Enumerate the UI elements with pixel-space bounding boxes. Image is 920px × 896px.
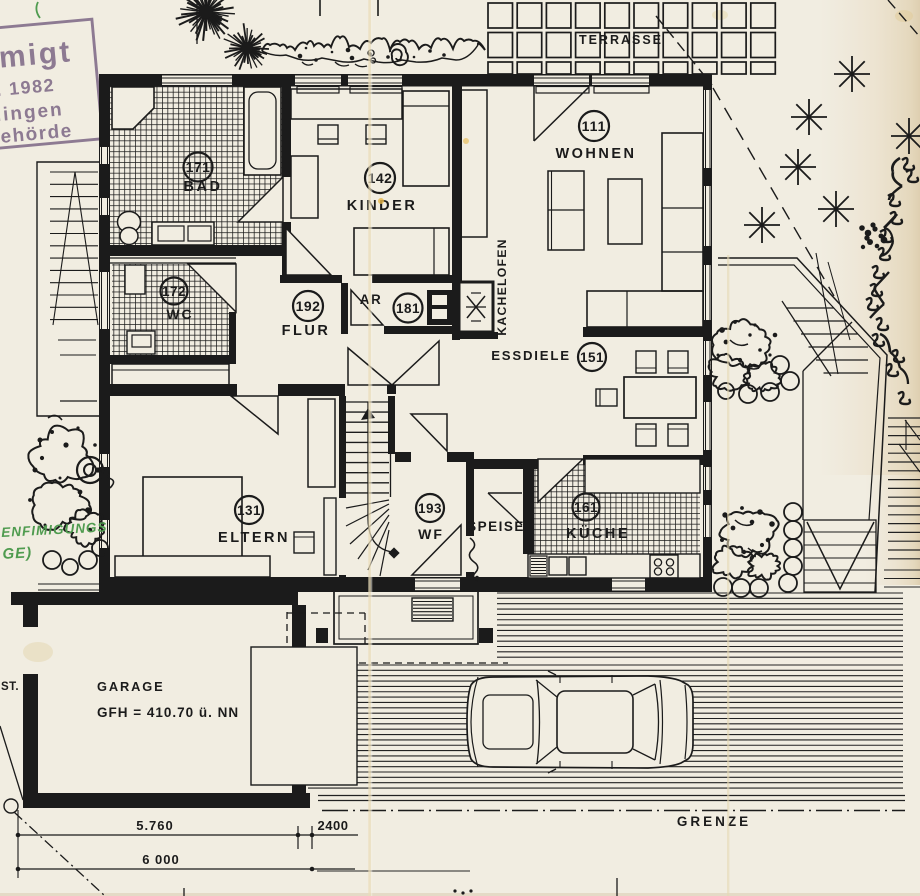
svg-text:5.760: 5.760 (136, 818, 174, 833)
svg-text:193: 193 (418, 501, 442, 516)
svg-text:ESSDIELE: ESSDIELE (491, 348, 571, 363)
svg-text:172: 172 (162, 284, 186, 299)
svg-text:BAD: BAD (184, 179, 223, 195)
svg-text:GE): GE) (2, 544, 33, 563)
svg-text:GFH = 410.70 ü. NN: GFH = 410.70 ü. NN (97, 705, 239, 720)
svg-text:KÜCHE: KÜCHE (566, 525, 630, 542)
svg-text:6 000: 6 000 (142, 852, 180, 867)
svg-text:161: 161 (574, 500, 598, 515)
svg-text:131: 131 (237, 503, 261, 518)
svg-text:TERRASSE: TERRASSE (579, 33, 663, 47)
svg-text:KACHELOFEN: KACHELOFEN (495, 238, 509, 335)
svg-text:ST.: ST. (1, 681, 19, 693)
svg-text:2400: 2400 (318, 818, 349, 833)
svg-text:GRENZE: GRENZE (677, 814, 751, 829)
svg-text:SPEISE: SPEISE (467, 519, 525, 534)
svg-text:WF: WF (418, 526, 444, 542)
svg-text:GARAGE: GARAGE (97, 679, 165, 694)
svg-text:171: 171 (186, 159, 211, 175)
svg-text:111: 111 (582, 118, 607, 134)
svg-text:151: 151 (580, 350, 604, 365)
svg-text:FLUR: FLUR (282, 323, 331, 339)
svg-text:192: 192 (296, 298, 321, 314)
svg-text:181: 181 (396, 301, 420, 316)
svg-text:WC: WC (166, 306, 193, 322)
svg-text:ELTERN: ELTERN (218, 530, 290, 546)
svg-text:WOHNEN: WOHNEN (555, 146, 636, 162)
